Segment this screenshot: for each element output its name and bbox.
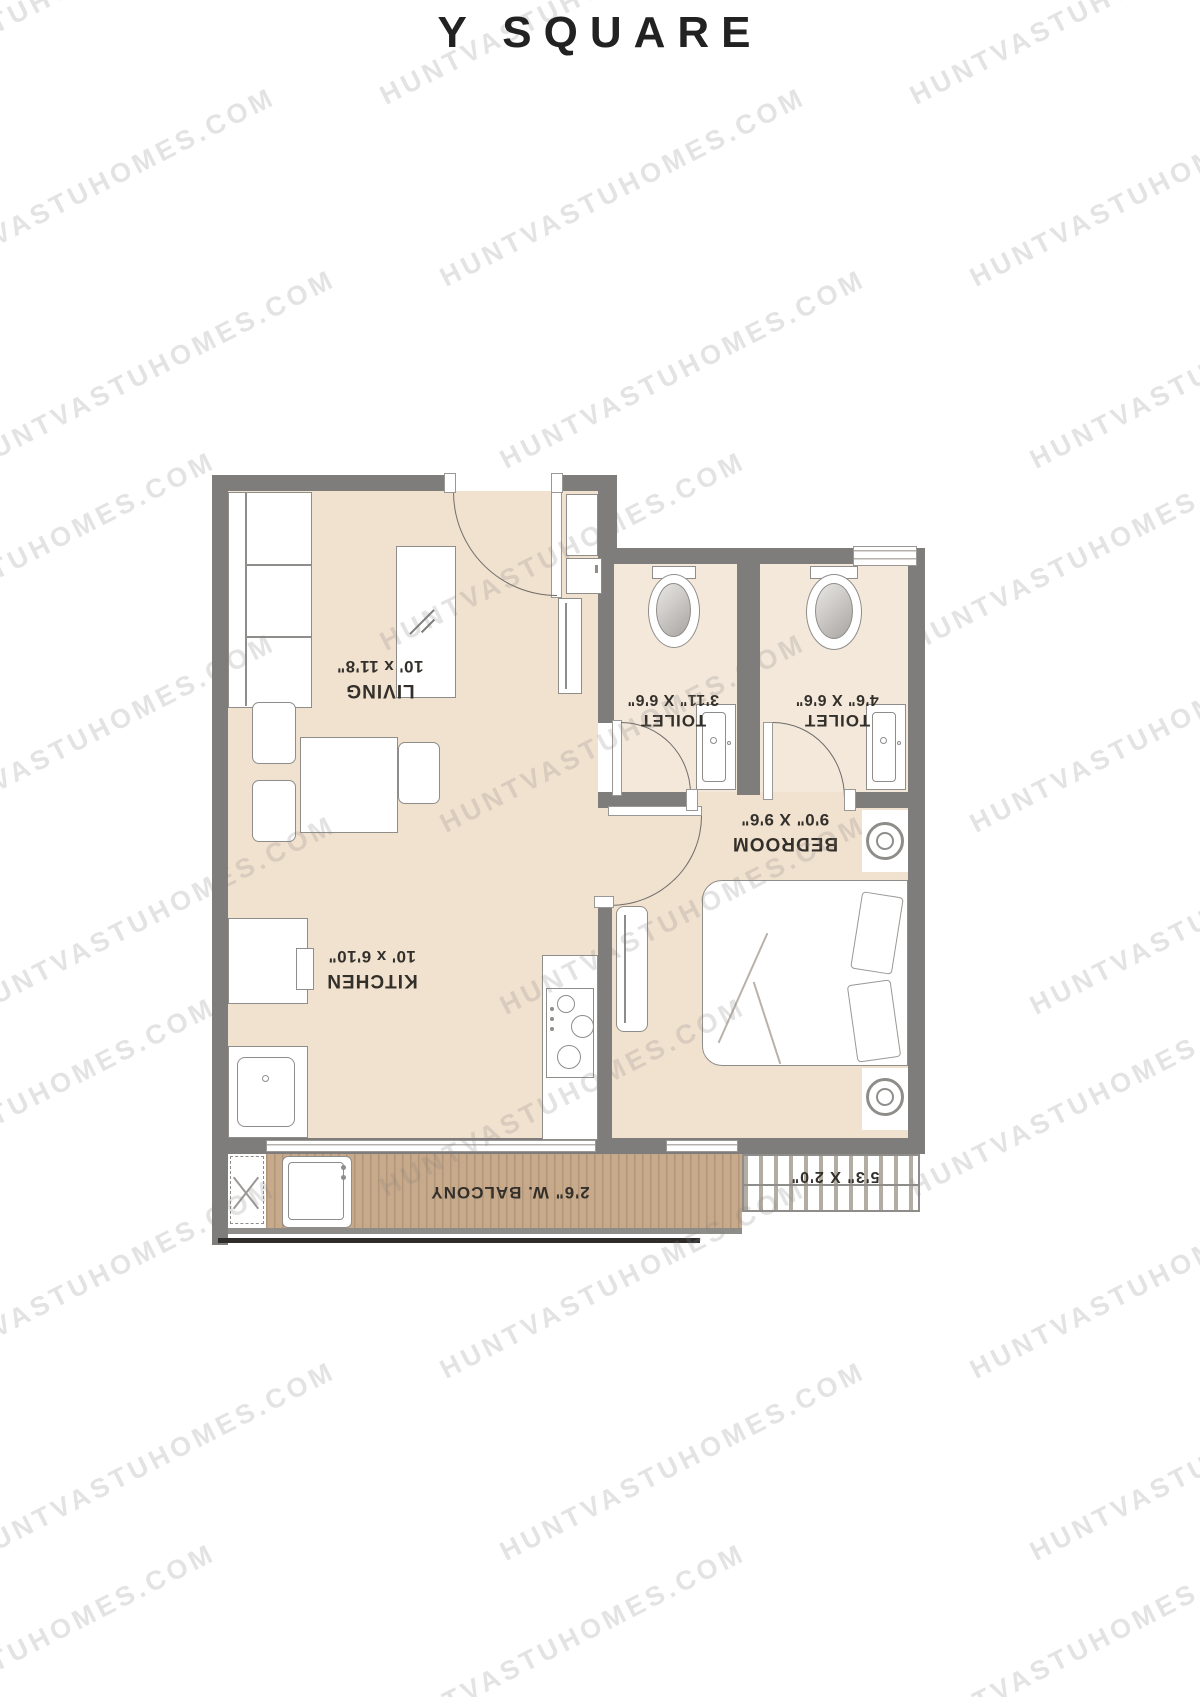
watermark-text: HUNTVASTUHOMES.COM <box>965 1174 1200 1386</box>
stove-hob <box>546 988 594 1078</box>
washing-machine <box>282 1156 352 1228</box>
page-title: Y SQUARE <box>0 8 1200 58</box>
balcony-duct <box>230 1156 264 1224</box>
bedside-table-bottom <box>862 1068 908 1130</box>
dining-chair-left-top <box>252 702 296 764</box>
balcony-outer-wall <box>228 1228 742 1234</box>
entry-cabinet <box>566 494 598 556</box>
bedroom-dims: 9'0" X 9'6" <box>700 808 870 830</box>
watermark-text: HUNTVASTUHOMES.COM <box>905 1538 1200 1697</box>
entry-jamb-left <box>444 473 456 493</box>
toilet2-label: TOILET 4'6" X 6'6" <box>772 688 902 731</box>
floorplan-page: Y SQUARE <box>0 0 1200 1697</box>
balcony-name: 2'6" W. BALCONY <box>430 1183 589 1202</box>
right-wall <box>908 548 925 1154</box>
living-dims: 10' x 11'8" <box>300 655 460 677</box>
kitchen-name: KITCHEN <box>292 967 452 992</box>
balcony-label: 2'6" W. BALCONY <box>380 1180 640 1203</box>
watermark-text: HUNTVASTUHOMES.COM <box>0 1356 341 1568</box>
watermark-text: HUNTVASTUHOMES.COM <box>965 82 1200 294</box>
watermark-text: HUNTVASTUHOMES.COM <box>495 1356 871 1568</box>
bedroom-balcony-window <box>666 1140 738 1152</box>
kitchen-bedroom-wall <box>598 900 612 1140</box>
toilet1-name: TOILET <box>608 709 738 731</box>
ledge-dims: 5'3" X 2'0" <box>791 1168 880 1185</box>
watermark-text: HUNTVASTUHOMES.COM <box>0 446 221 658</box>
toilet1-wc-bowl <box>648 574 700 648</box>
watermark-text: HUNTVASTUHOMES.COM <box>1025 810 1200 1022</box>
top-wall-left <box>212 475 455 491</box>
dining-table <box>300 737 398 833</box>
toilet1-door-jamb <box>686 789 698 811</box>
watermark-text: HUNTVASTUHOMES.COM <box>0 1538 221 1697</box>
kitchen-label: KITCHEN 10' x 6'10" <box>292 945 452 992</box>
toilet1-label: TOILET 3'11" X 6'6" <box>608 688 738 731</box>
toilet2-wc-bowl <box>806 574 862 650</box>
shoe-cabinet <box>558 598 582 694</box>
bedroom-name: BEDROOM <box>700 830 870 855</box>
watermark-text: HUNTVASTUHOMES.COM <box>965 628 1200 840</box>
entry-fridge <box>566 558 602 594</box>
toilet2-window <box>853 546 917 566</box>
watermark-text: HUNTVASTUHOMES.COM <box>905 992 1200 1204</box>
watermark-text: HUNTVASTUHOMES.COM <box>1025 264 1200 476</box>
entry-jamb-right <box>551 473 563 493</box>
watermark-text: HUNTVASTUHOMES.COM <box>905 446 1200 658</box>
bedroom-wall-jamb <box>594 896 614 908</box>
kitchen-balcony-window <box>266 1140 596 1152</box>
ledge-label: 5'3" X 2'0" <box>770 1165 900 1186</box>
toilet2-door-leaf <box>763 722 773 800</box>
watermark-text: HUNTVASTUHOMES.COM <box>0 264 341 476</box>
watermark-text: HUNTVASTUHOMES.COM <box>495 264 871 476</box>
watermark-text: HUNTVASTUHOMES.COM <box>375 1538 751 1697</box>
dining-chair-left-bottom <box>252 780 296 842</box>
toilet-divider-wall <box>737 548 760 795</box>
living-label: LIVING 10' x 11'8" <box>300 655 460 702</box>
kitchen-counter-lower <box>228 1046 308 1138</box>
watermark-text: HUNTVASTUHOMES.COM <box>1025 1356 1200 1568</box>
balcony-parapet-line <box>218 1238 700 1243</box>
dining-chair-right <box>398 742 440 804</box>
left-wall <box>212 475 228 1245</box>
toilet2-name: TOILET <box>772 709 902 731</box>
bedroom-wardrobe <box>616 906 648 1032</box>
watermark-text: HUNTVASTUHOMES.COM <box>435 82 811 294</box>
watermark-text: HUNTVASTUHOMES.COM <box>0 82 281 294</box>
bedroom-label: BEDROOM 9'0" X 9'6" <box>700 808 870 855</box>
watermark-text: HUNTVASTUHOMES.COM <box>0 992 221 1204</box>
living-name: LIVING <box>300 677 460 702</box>
toilet2-dims: 4'6" X 6'6" <box>772 688 902 709</box>
kitchen-dims: 10' x 6'10" <box>292 945 452 967</box>
toilet1-dims: 3'11" X 6'6" <box>608 688 738 709</box>
toilet2-bottom-wall <box>850 792 908 808</box>
